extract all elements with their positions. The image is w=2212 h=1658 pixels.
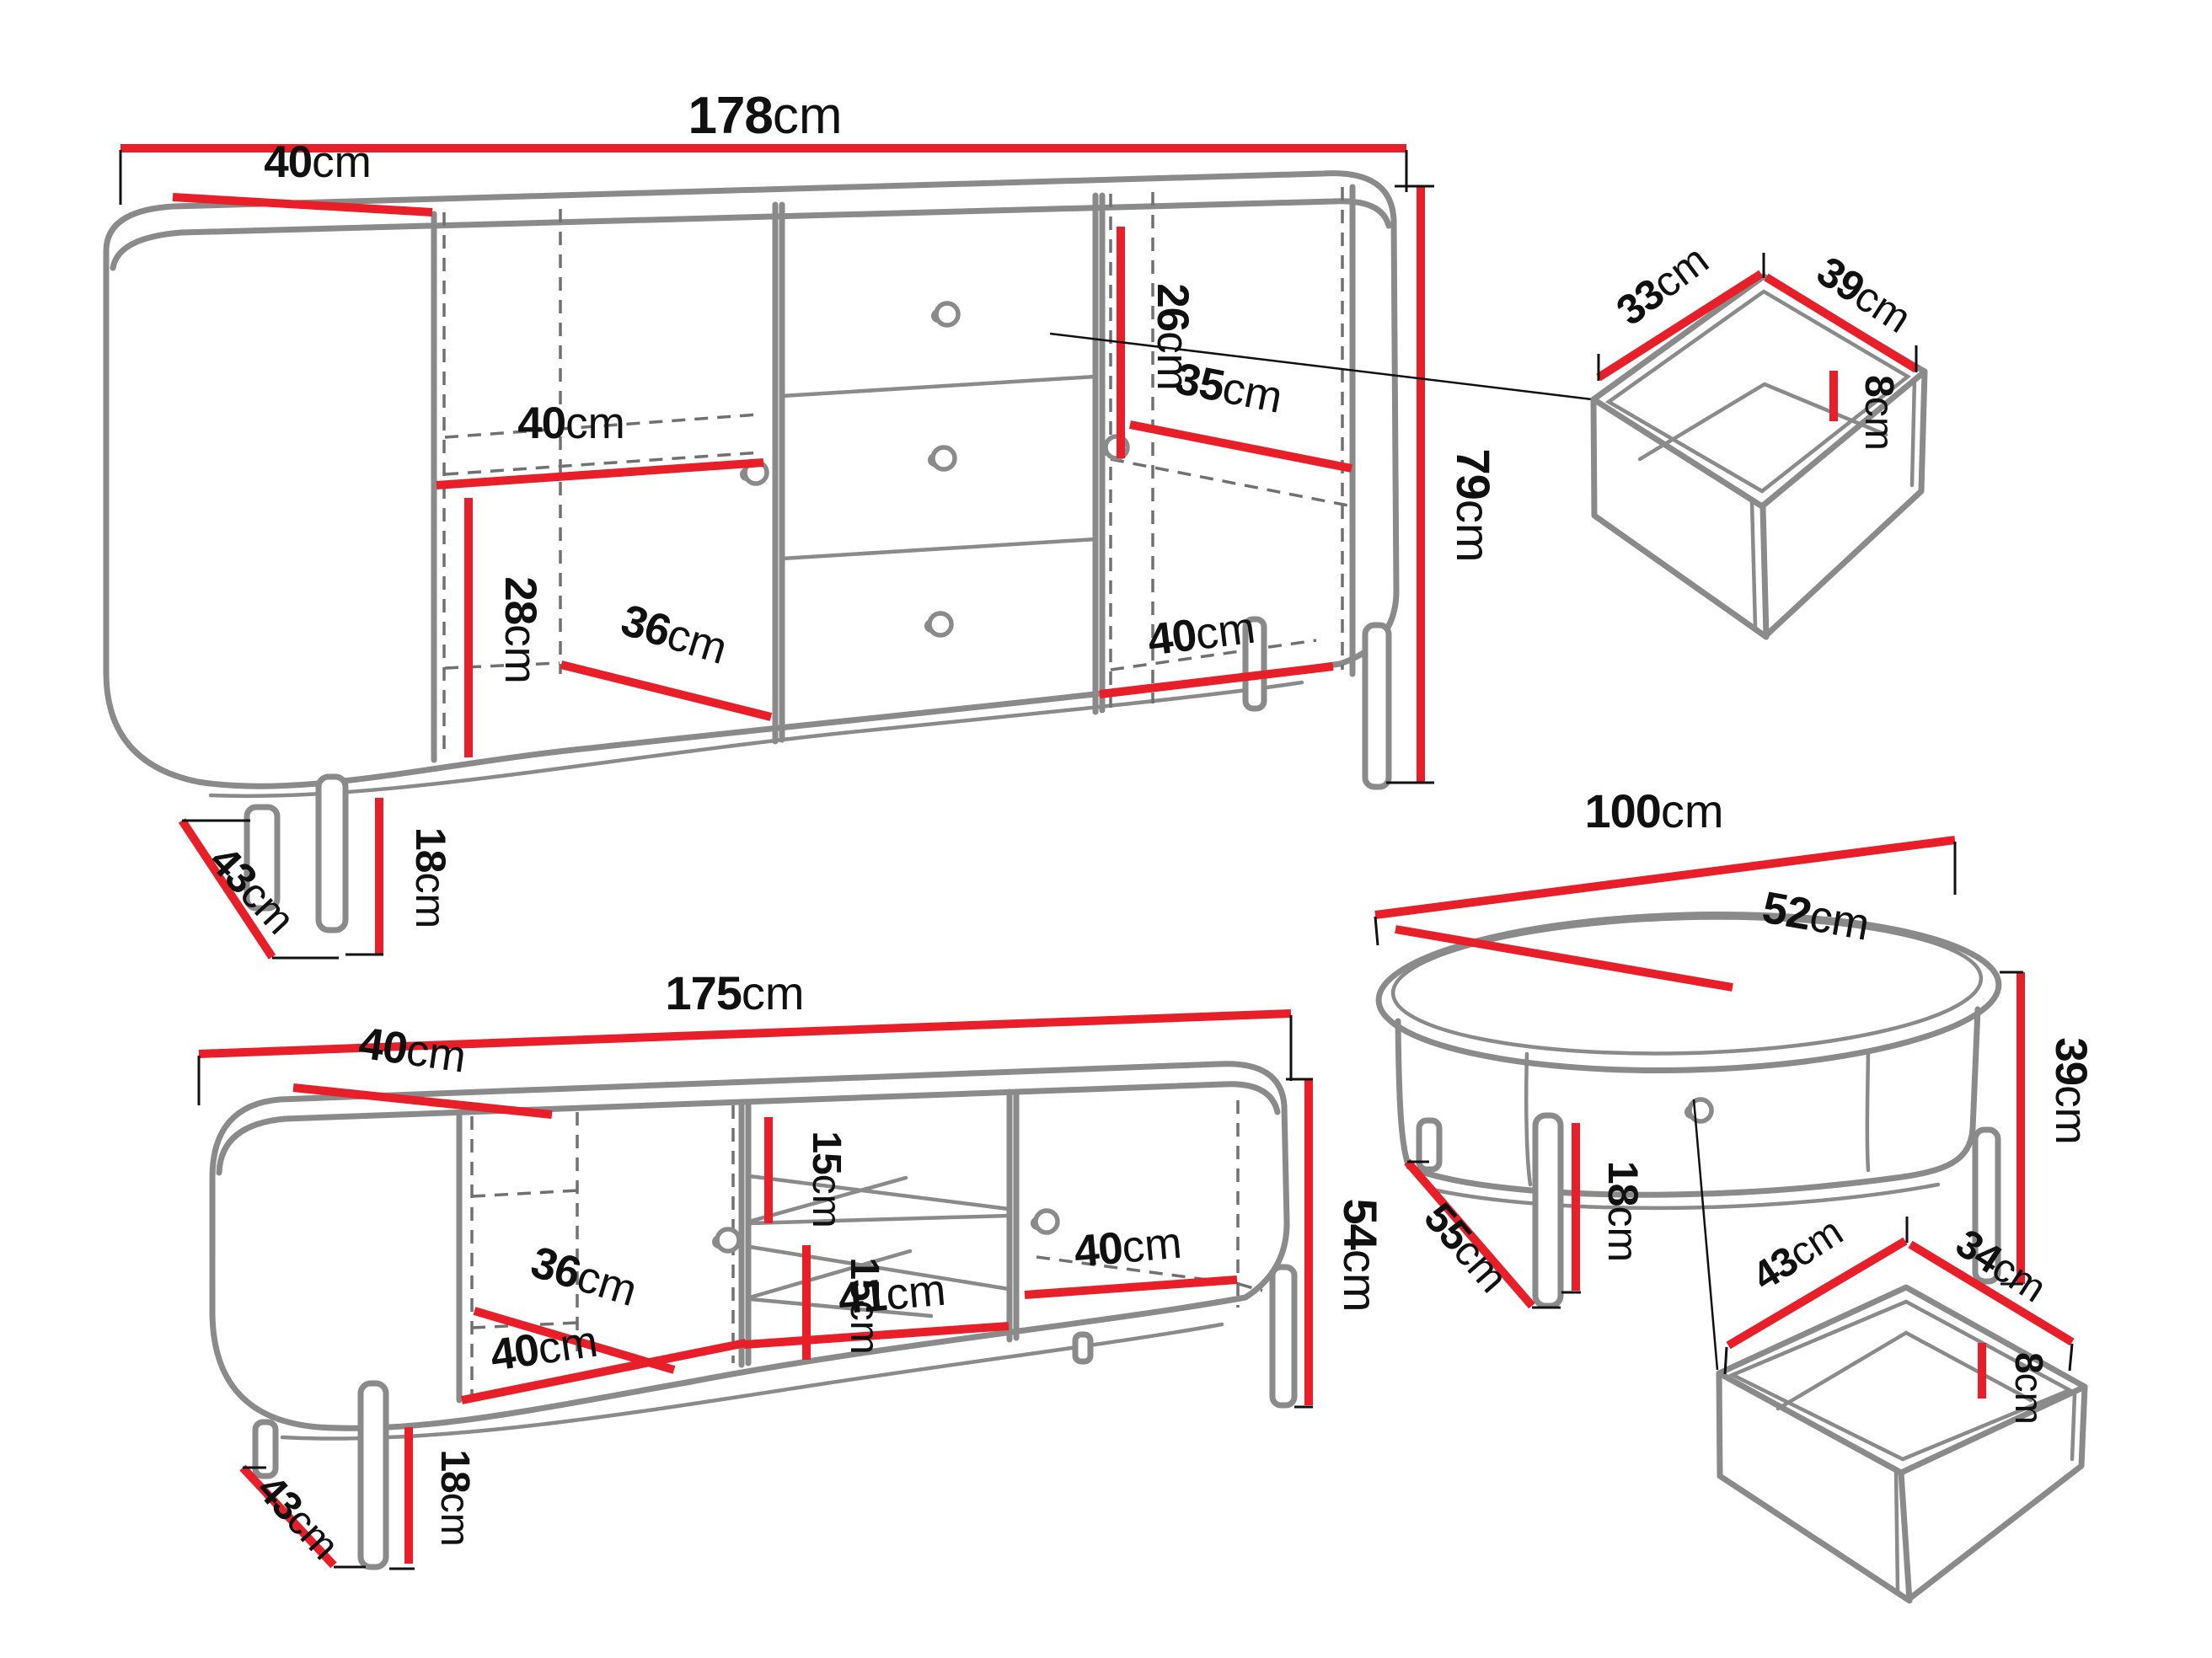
dimension-line-width — [1395, 929, 1733, 987]
sideboard-right-bottom-label: 40cm — [1145, 603, 1258, 666]
drawer-small-floor-edges — [1778, 1333, 2031, 1409]
coffee-table-height-label: 39cm — [2046, 1037, 2096, 1145]
tv-stand-leg-front-right — [1272, 1267, 1294, 1405]
tv-stand-height-label: 54cm — [1334, 1199, 1387, 1313]
drawer-knob-icon — [931, 303, 958, 325]
dimension-line-shelf-width — [437, 463, 763, 485]
drawer-knob-icon — [928, 447, 955, 469]
drawer-knob-icon — [924, 613, 951, 635]
sideboard-width-label: 178cm — [688, 87, 842, 145]
dimension-line-right-shelf — [1130, 425, 1352, 468]
drawer-knob-icon — [1684, 1099, 1711, 1121]
door-knob-icon — [1031, 1211, 1058, 1233]
door-knob-icon — [712, 1229, 739, 1251]
coffee-table-top-inner — [1391, 911, 1983, 1061]
drawer-small-height-label: 8cm — [2007, 1352, 2051, 1425]
tv-stand-width-label: 175cm — [665, 966, 804, 1019]
sideboard-drawer-left-edge — [775, 205, 782, 741]
tv-stand-open-width-label: 41cm — [836, 1265, 947, 1324]
dimension-line-right-bottom — [1100, 666, 1333, 694]
drawer-large-height-label: 8cm — [1856, 375, 1901, 451]
sideboard-bottom-depth-label: 36cm — [615, 595, 732, 674]
sideboard-leg-front-right — [1365, 625, 1389, 787]
sideboard-drawing: 178cm 40cm 40cm 28cm 36cm 26cm 35cm 40cm… — [106, 87, 1500, 958]
diagram-canvas: 178cm 40cm 40cm 28cm 36cm 26cm 35cm 40cm… — [0, 0, 2212, 1658]
tv-stand-leg-back-right — [1075, 1334, 1090, 1361]
dimension-line-right-door-width — [1025, 1280, 1237, 1295]
callout-line-drawer-large — [1050, 334, 1592, 399]
tv-stand-upper-shelf-label: 15cm — [804, 1131, 849, 1227]
tv-stand-shelf-upper — [749, 1176, 1009, 1223]
tv-stand-open-section-left-edge — [742, 1105, 748, 1365]
sideboard-top-front-edge — [113, 201, 1389, 268]
tv-stand-drawing: 175cm 40cm 15cm 15cm 41cm 36cm 40cm 40cm… — [199, 966, 1387, 1569]
callout-line-drawer-small — [1694, 1099, 1717, 1370]
sideboard-right-shelf-label: 35cm — [1171, 354, 1287, 423]
coffee-table-apron — [1398, 1009, 1978, 1195]
coffee-table-drawing: 100cm 52cm 39cm 55cm 18cm — [1375, 784, 2096, 1308]
drawer-small-drawing: 43cm 34cm 8cm — [1719, 1209, 2085, 1601]
furniture-dimensions-diagram: 178cm 40cm 40cm 28cm 36cm 26cm 35cm 40cm… — [0, 0, 2212, 1658]
sideboard-drawer-right-edge — [1095, 195, 1102, 712]
tv-stand-leg-depth-label: 43cm — [249, 1467, 347, 1569]
sideboard-leg-height-label: 18cm — [407, 827, 454, 928]
sideboard-shelf-width-label: 40cm — [517, 398, 625, 448]
drawer-large-drawing: 33cm 39cm 8cm — [1593, 236, 1925, 637]
coffee-table-leg-depth-label: 55cm — [1415, 1194, 1517, 1302]
drawer-small-front-panel — [1719, 1373, 1909, 1601]
coffee-table-leg-height-label: 18cm — [1599, 1161, 1647, 1262]
coffee-table-leg-front-left — [1535, 1115, 1561, 1306]
tv-stand-left-bottom-depth-label: 36cm — [525, 1237, 642, 1316]
tv-stand-leg-front-middle — [361, 1383, 386, 1567]
coffee-table-width-label: 52cm — [1759, 883, 1873, 950]
tv-stand-depth-label: 40cm — [356, 1019, 469, 1083]
sideboard-height-label: 79cm — [1447, 449, 1500, 563]
sideboard-depth-label: 40cm — [264, 137, 372, 187]
sideboard-leg-front-middle — [319, 777, 345, 930]
coffee-table-length-label: 100cm — [1584, 784, 1723, 837]
sideboard-lower-height-label: 28cm — [495, 576, 545, 684]
dimension-line-bottom-depth — [561, 665, 771, 717]
tv-stand-leg-height-label: 18cm — [432, 1449, 477, 1546]
tv-stand-right-door-label: 40cm — [1072, 1218, 1183, 1277]
